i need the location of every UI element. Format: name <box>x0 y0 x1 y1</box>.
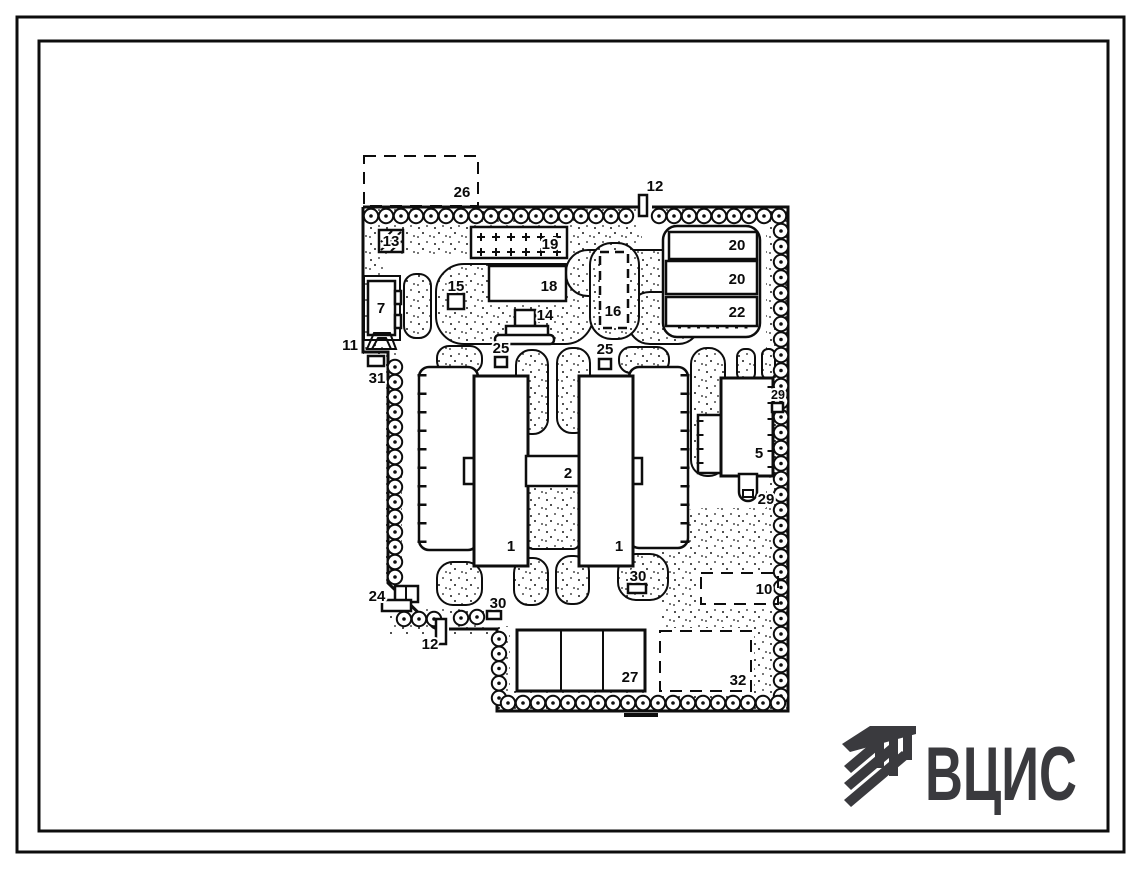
structure-31 <box>368 356 384 366</box>
logo-text: ВЦИС <box>925 732 1077 817</box>
label-29-bottom: 29 <box>758 491 775 508</box>
scan-artifact <box>624 713 658 717</box>
label-15: 15 <box>448 278 465 295</box>
label-7: 7 <box>377 300 385 317</box>
tree-row-bottom-left <box>397 612 441 626</box>
label-13: 13 <box>383 233 400 250</box>
label-2: 2 <box>564 465 572 482</box>
structure-29-bottom <box>739 474 757 501</box>
building-1-left <box>419 367 528 566</box>
structure-30-lower <box>487 611 501 619</box>
label-32: 32 <box>730 672 747 689</box>
label-1-right: 1 <box>615 538 623 555</box>
label-22: 22 <box>729 304 746 321</box>
label-31: 31 <box>369 370 386 387</box>
structure-29-top <box>772 403 783 412</box>
site-plan-drawing: 26 12 13 19 18 15 14 16 20 20 22 7 11 31… <box>0 0 1139 869</box>
label-20a: 20 <box>729 237 746 254</box>
label-10: 10 <box>756 581 773 598</box>
publisher-logo: ВЦИС <box>842 726 1077 817</box>
label-18: 18 <box>541 278 558 295</box>
label-30-upper: 30 <box>630 568 647 585</box>
tree-column-inner <box>492 632 506 705</box>
label-27: 27 <box>622 669 639 686</box>
tree-column-left <box>388 360 402 584</box>
label-25-left: 25 <box>493 340 510 357</box>
label-11: 11 <box>342 337 358 354</box>
structure-30-upper <box>628 584 646 593</box>
gate-12-top <box>639 195 647 216</box>
label-19: 19 <box>542 236 559 253</box>
label-30-lower: 30 <box>490 595 507 612</box>
outer-frame <box>17 17 1124 852</box>
logo-emblem-icon <box>842 726 916 807</box>
drawing-sheet: 26 12 13 19 18 15 14 16 20 20 22 7 11 31… <box>0 0 1139 869</box>
building-block-20-22 <box>663 226 760 337</box>
structure-25-left <box>495 357 507 367</box>
tree-row-bottom <box>501 696 785 710</box>
label-26: 26 <box>454 184 471 201</box>
label-12-bottom: 12 <box>422 636 439 653</box>
label-24: 24 <box>369 588 386 605</box>
tree-column-right <box>774 224 788 703</box>
label-16: 16 <box>605 303 622 320</box>
label-1-left: 1 <box>507 538 515 555</box>
tree-row-top-right <box>652 209 786 223</box>
structure-25-right <box>599 359 611 369</box>
label-25-right: 25 <box>597 341 614 358</box>
building-15 <box>448 294 464 309</box>
label-5: 5 <box>755 445 763 462</box>
label-20b: 20 <box>729 271 746 288</box>
building-1-right <box>579 367 688 566</box>
label-14: 14 <box>537 307 554 324</box>
label-12-top: 12 <box>647 178 664 195</box>
label-29-top: 29 <box>771 388 785 402</box>
